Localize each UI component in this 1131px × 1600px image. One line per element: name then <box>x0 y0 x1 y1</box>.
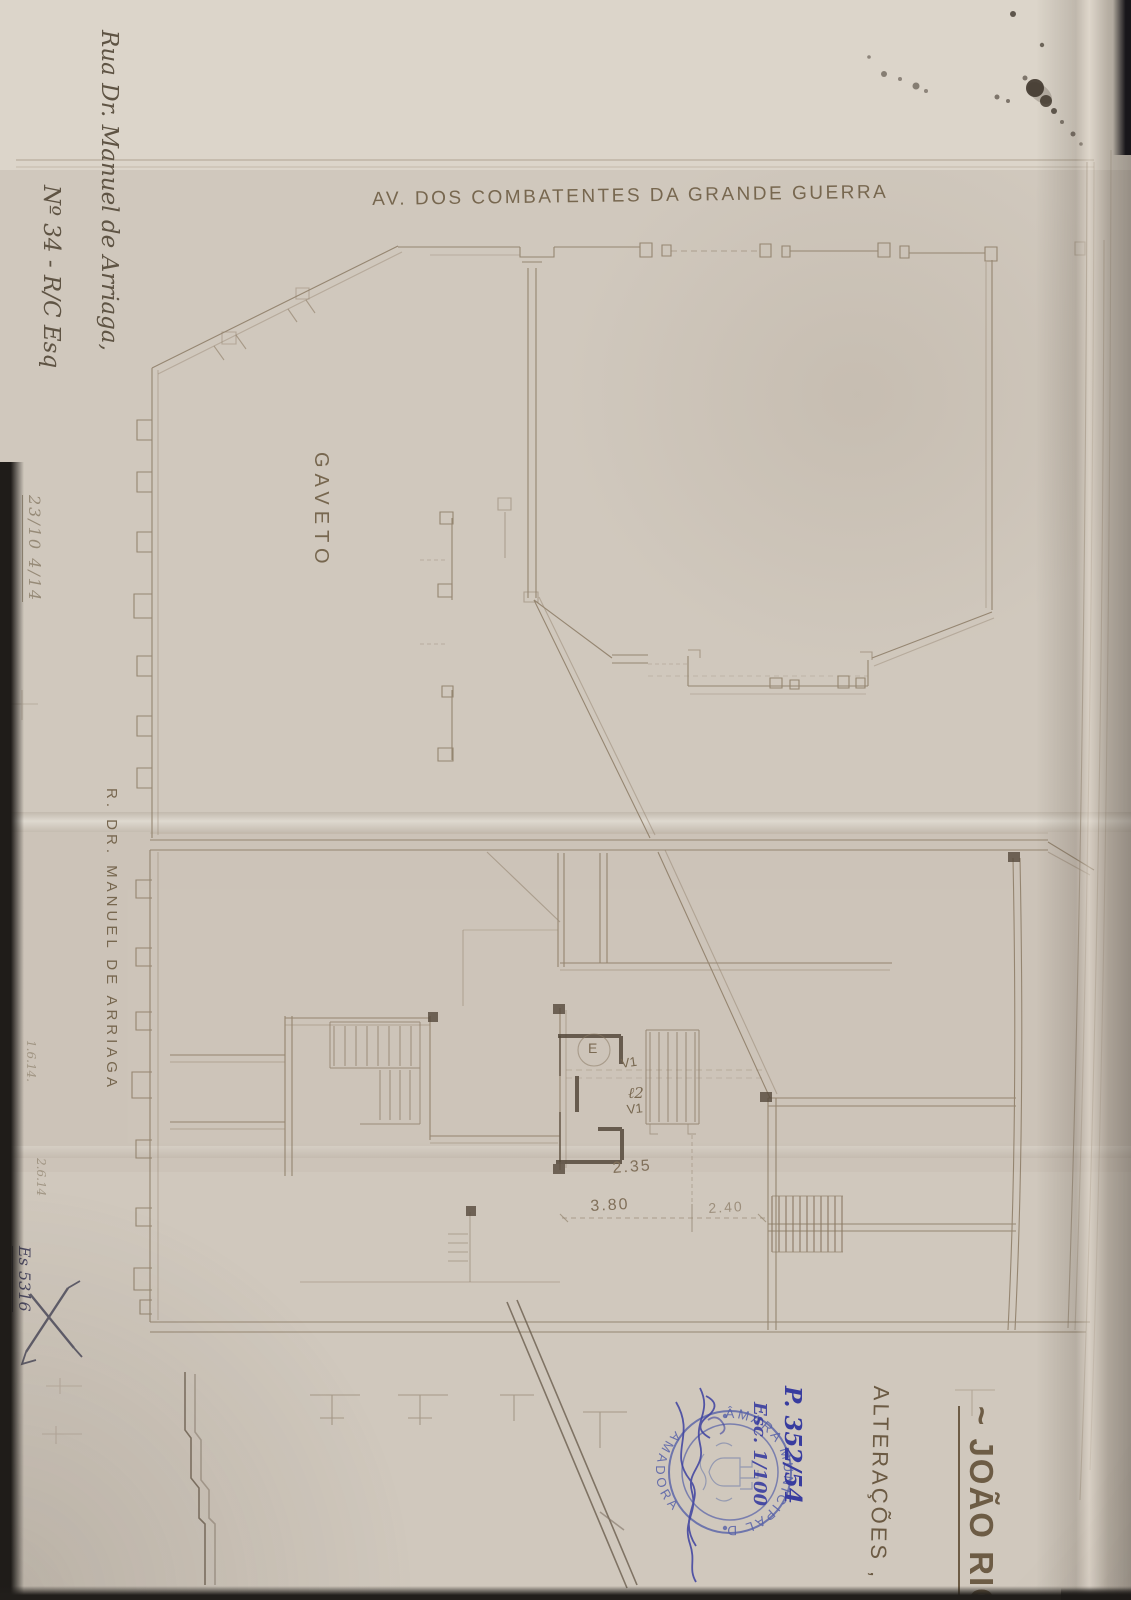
lower-plan-walls <box>132 833 1094 1332</box>
ink-blots <box>867 11 1083 146</box>
process-number-note: P. 352/54 <box>779 1386 806 1504</box>
handwritten-address-line2: Nº 34 - R/C Esq <box>38 185 64 368</box>
margin-note-1: 1.6.14. <box>24 1040 38 1082</box>
margin-ref-note: Es 5316 <box>12 1246 34 1312</box>
wall-fragments <box>8 690 995 1448</box>
window-label-upper: V1 <box>620 1054 638 1071</box>
pencil-plus-mark <box>8 690 38 720</box>
wall-pier-blocks <box>428 852 1020 1216</box>
dimension-hall-depth: 2.35 <box>612 1157 652 1178</box>
dimension-span-left: 3.80 <box>590 1196 630 1216</box>
dimension-span-right: 2.40 <box>708 1198 744 1216</box>
street-left-label: R. DR. MANUEL DE ARRIAGA <box>103 788 120 1091</box>
margin-note-2: 2.6.14 <box>34 1158 48 1196</box>
corner-label: GAVETO <box>309 452 332 570</box>
stair-west <box>330 1022 420 1124</box>
alterations-title: ALTERAÇÕES , <box>865 1386 894 1581</box>
window-label-lower: V1 <box>626 1100 643 1117</box>
entry-label: E <box>588 1040 597 1056</box>
applicant-title: ~ JOÃO RIC <box>958 1406 1000 1600</box>
scanned-plan-photo: CÂMARA MUNICIPAL DA AMADORA AV. D <box>0 0 1131 1600</box>
basement-fragments <box>185 1300 637 1588</box>
upper-plan-outline <box>134 242 1085 838</box>
plan-drawing: CÂMARA MUNICIPAL DA AMADORA <box>0 0 1131 1600</box>
margin-date-note: 23/10 4/14 <box>22 495 44 602</box>
sheet-border-lines <box>16 150 1111 1500</box>
scale-note: Esc. 1/100 <box>749 1402 770 1506</box>
stair-entrance <box>646 1030 699 1134</box>
handwritten-address-line1: Rua Dr. Manuel de Arriaga, <box>96 30 122 351</box>
